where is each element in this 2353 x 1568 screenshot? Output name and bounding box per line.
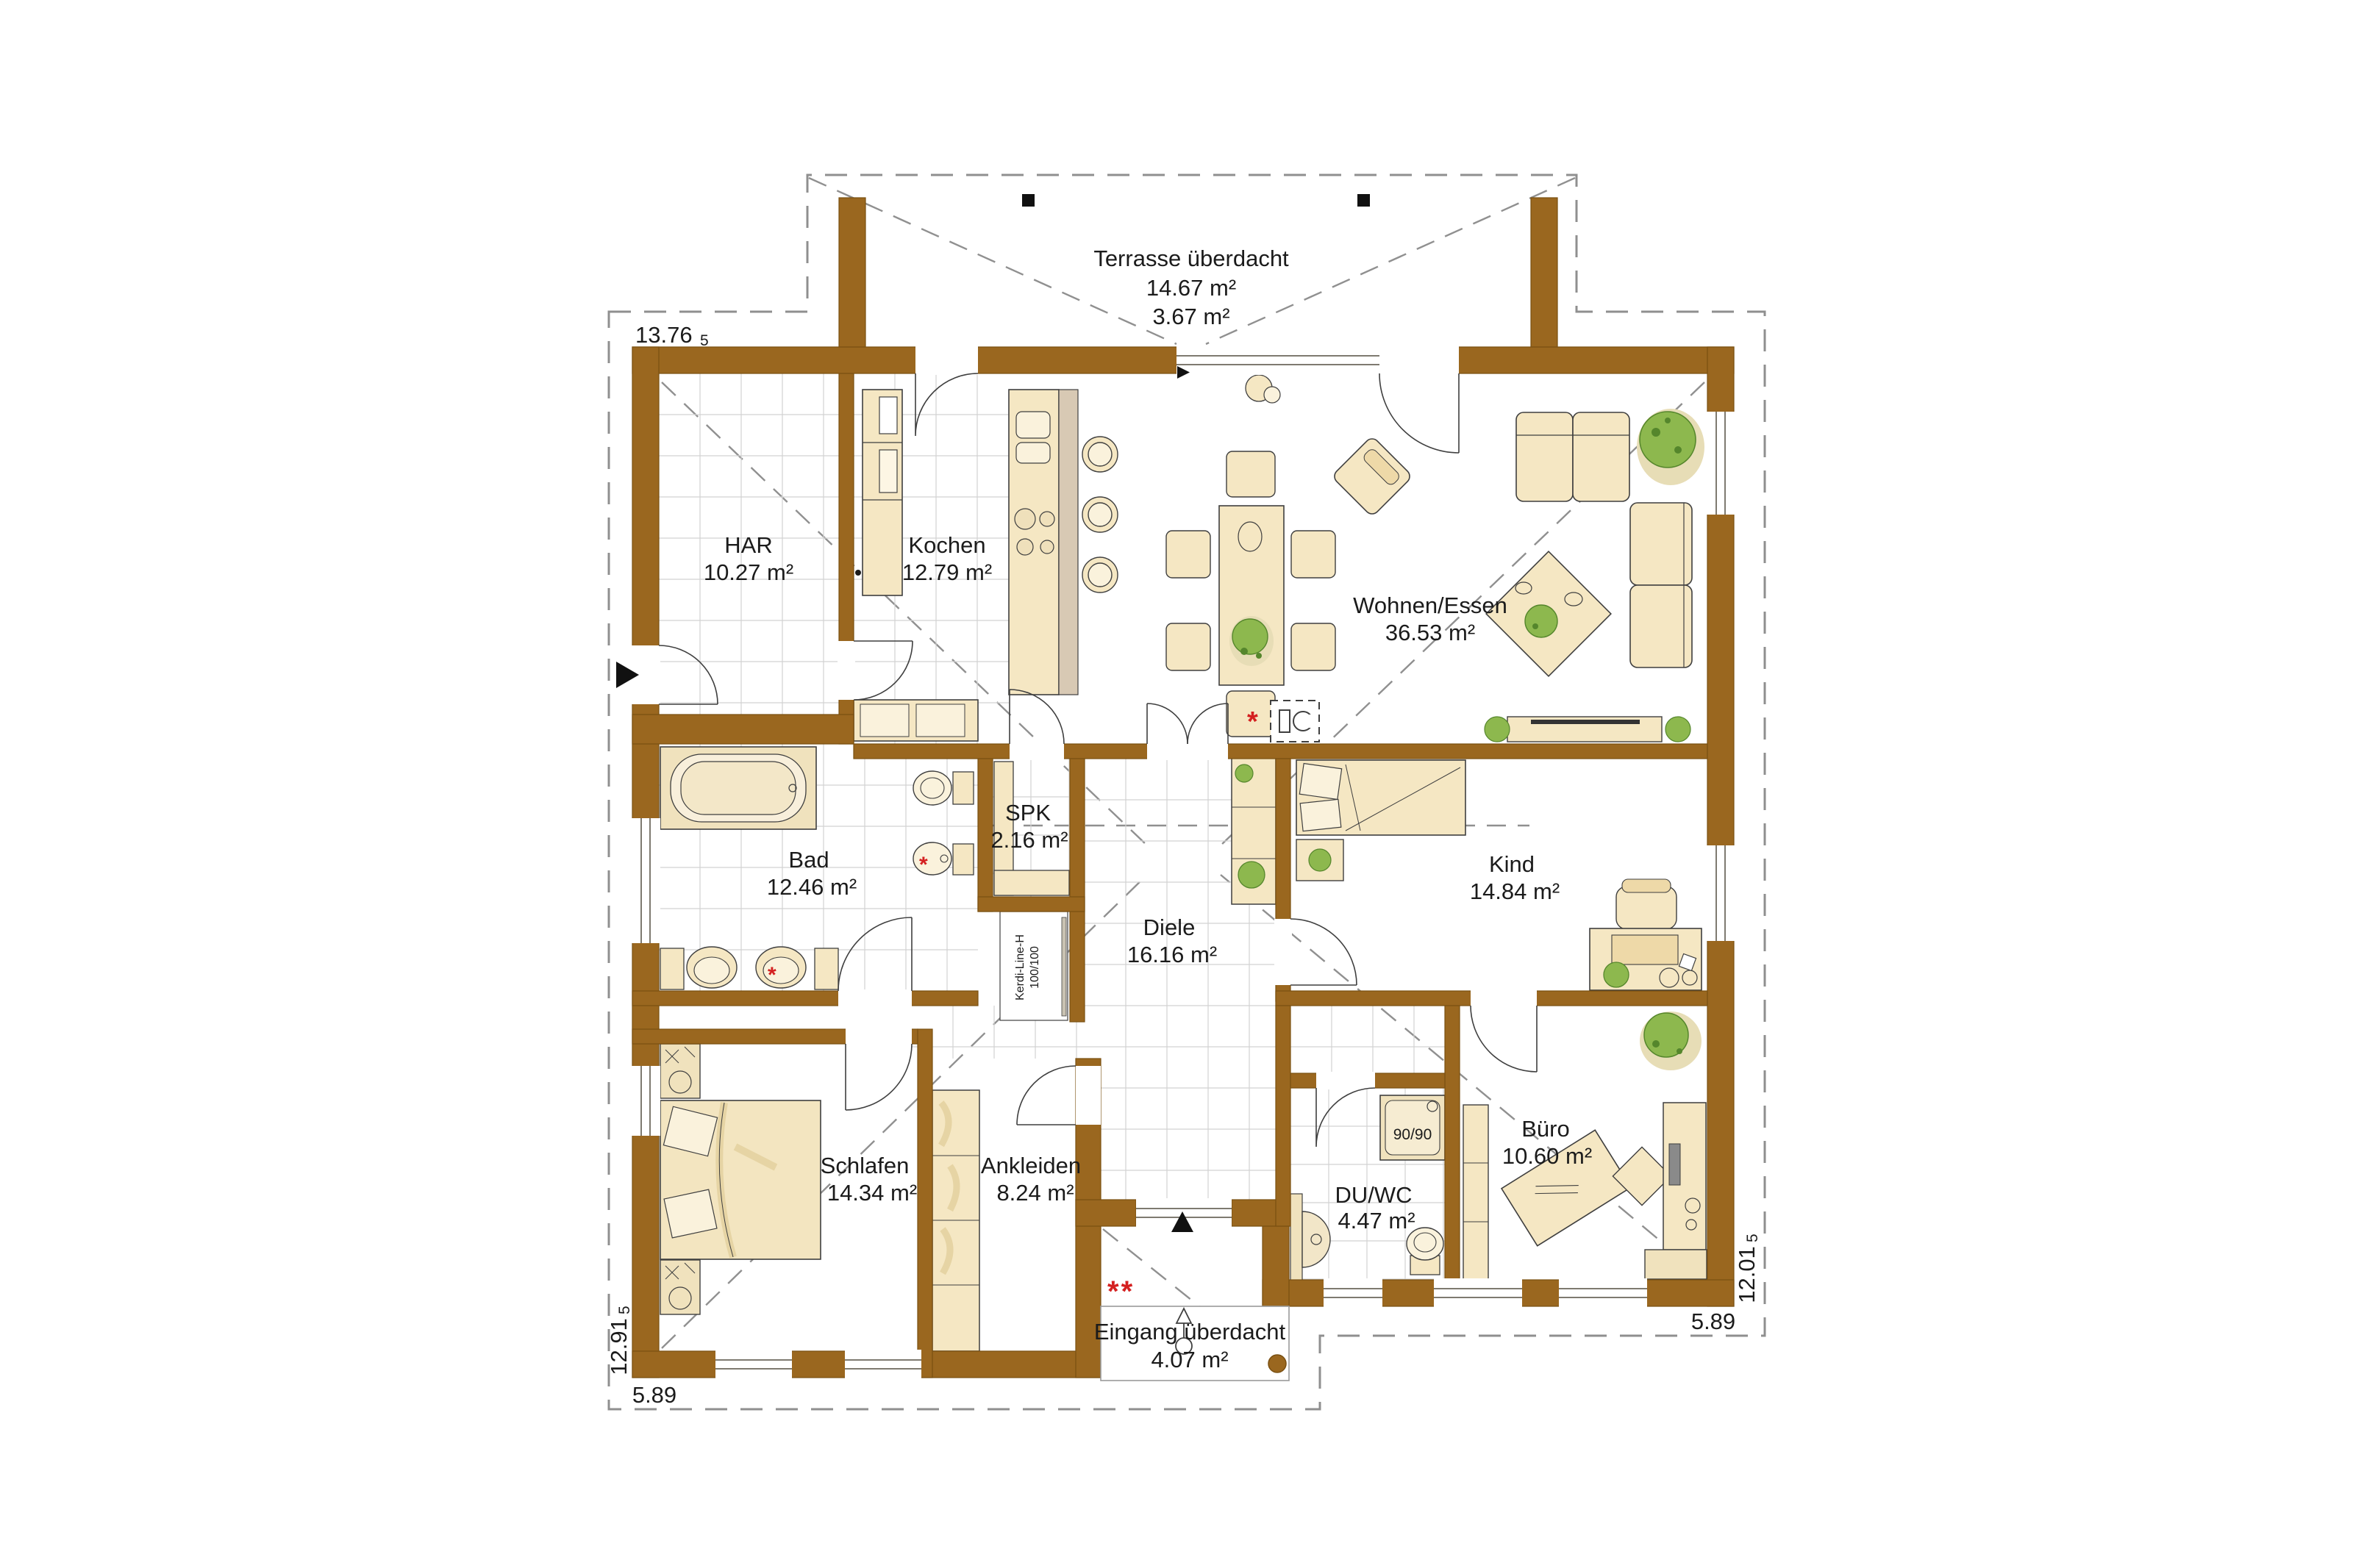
- window-duwc-bottom: [1324, 1278, 1382, 1308]
- label-bad: Bad: [788, 847, 829, 873]
- bathtub: [660, 747, 816, 829]
- buero-plant: [1640, 1012, 1702, 1070]
- kitchen-tall-cabinets: [863, 390, 902, 595]
- double-vanity: [660, 947, 838, 989]
- window-schlafen-bottom-1: [715, 1350, 792, 1379]
- kind-nightstand: [1296, 840, 1343, 881]
- label-ankleiden: Ankleiden: [981, 1153, 1081, 1178]
- label-terrasse-area2: 3.67 m²: [1152, 304, 1229, 329]
- label-buero: Büro: [1521, 1116, 1569, 1142]
- label-eingang: Eingang überdacht: [1094, 1319, 1286, 1345]
- toilet: [913, 771, 974, 805]
- window-wohnen-right: [1706, 412, 1735, 515]
- shower-size-label: 90/90: [1393, 1126, 1432, 1143]
- svg-text:5: 5: [1744, 1234, 1761, 1242]
- floor-plan-svg: Terrasse überdacht 14.67 m² 3.67 m² HAR …: [0, 0, 2353, 1568]
- svg-text:Kerdi-Line-H: Kerdi-Line-H: [1014, 934, 1026, 1000]
- kind-bed: [1296, 760, 1465, 835]
- porch-post-icon: [1268, 1355, 1286, 1372]
- label-duwc: DU/WC: [1335, 1182, 1412, 1208]
- label-ankleiden-area: 8.24 m²: [996, 1180, 1074, 1206]
- double-asterisk-entrance: **: [1107, 1275, 1135, 1308]
- label-kind: Kind: [1489, 851, 1535, 877]
- label-terrasse: Terrasse überdacht: [1093, 246, 1289, 271]
- label-terrasse-area: 14.67 m²: [1146, 275, 1236, 301]
- label-kochen-area: 12.79 m²: [902, 559, 992, 585]
- svg-text:12.01: 12.01: [1734, 1246, 1760, 1303]
- sideboard-tv: [1485, 717, 1690, 742]
- hall-cabinet: [1232, 756, 1276, 904]
- label-har-area: 10.27 m²: [704, 559, 793, 585]
- armchair-rotated: [1332, 436, 1413, 517]
- door-stop-dot: [855, 570, 861, 576]
- asterisk-basin: *: [768, 963, 776, 987]
- window-buero-bottom-1: [1434, 1278, 1522, 1308]
- label-bad-area: 12.46 m²: [767, 874, 857, 900]
- floor-plan: Terrasse überdacht 14.67 m² 3.67 m² HAR …: [0, 0, 2353, 1568]
- kitchen-base-counter: [854, 700, 978, 741]
- dining-table-group: [1166, 451, 1335, 737]
- label-eingang-area: 4.07 m²: [1151, 1347, 1228, 1372]
- label-spk-area: 2.16 m²: [990, 827, 1068, 853]
- dim-bottom-left: 5.89: [632, 1382, 676, 1408]
- asterisk-fireplace: *: [1247, 706, 1258, 737]
- dim-top-left: 13.76 5: [635, 322, 709, 349]
- dim-right: 12.01 5: [1734, 1234, 1761, 1303]
- label-kind-area: 14.84 m²: [1470, 878, 1560, 904]
- duwc-washbasin: [1290, 1194, 1330, 1282]
- label-schlafen: Schlafen: [821, 1153, 910, 1178]
- wardrobe: [932, 1090, 979, 1351]
- label-diele: Diele: [1143, 914, 1196, 940]
- window-kind-right: [1706, 845, 1735, 941]
- window-terrace-glazing: [1176, 346, 1379, 375]
- label-wohnen-area: 36.53 m²: [1385, 620, 1475, 645]
- label-schlafen-area: 14.34 m²: [827, 1180, 917, 1206]
- window-bad-left: [631, 818, 660, 943]
- fireplace-icon: [1271, 701, 1319, 742]
- schlafen-bed-group: [660, 1044, 821, 1314]
- label-diele-area: 16.16 m²: [1127, 942, 1217, 967]
- svg-text:12.91: 12.91: [606, 1318, 632, 1375]
- label-duwc-area: 4.47 m²: [1338, 1208, 1415, 1234]
- label-spk: SPK: [1005, 800, 1051, 826]
- kind-desk-group: [1590, 879, 1702, 990]
- svg-text:5: 5: [616, 1306, 633, 1314]
- window-schlafen-left: [631, 1066, 660, 1136]
- kitchen-peninsula: [1009, 390, 1078, 695]
- asterisk-bidet: *: [919, 853, 928, 877]
- terrace-posts: [1022, 194, 1370, 207]
- terrace-post-icon: [1022, 194, 1035, 207]
- svg-text:100/100: 100/100: [1029, 946, 1041, 989]
- svg-text:5: 5: [700, 332, 709, 349]
- dim-left: 12.91 5: [606, 1306, 633, 1375]
- window-buero-bottom-2: [1559, 1278, 1647, 1308]
- label-wohnen: Wohnen/Essen: [1353, 593, 1507, 618]
- dim-bottom-right: 5.89: [1691, 1309, 1735, 1334]
- terrace-post-icon: [1357, 194, 1370, 207]
- duwc-toilet: [1407, 1228, 1443, 1275]
- label-kochen: Kochen: [908, 532, 985, 558]
- side-table: [1246, 375, 1280, 403]
- buero-cabinet-west: [1463, 1105, 1488, 1279]
- window-schlafen-bottom-2: [845, 1350, 921, 1379]
- label-buero-area: 10.60 m²: [1502, 1143, 1592, 1169]
- label-har: HAR: [724, 532, 772, 558]
- svg-text:13.76: 13.76: [635, 322, 693, 348]
- bar-stools: [1082, 437, 1118, 593]
